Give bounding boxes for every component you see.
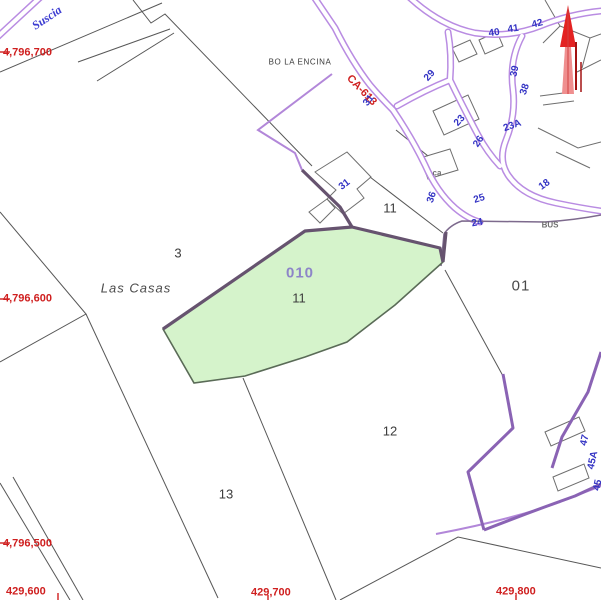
parcel-number: 01	[512, 278, 531, 295]
house-number: 45	[591, 478, 601, 492]
coordinate-label-y1: 4,796,700	[3, 47, 52, 59]
parcel-number: 12	[383, 424, 397, 439]
house-number: 31	[337, 177, 353, 193]
building-outline	[452, 40, 477, 62]
house-number: 47	[578, 433, 591, 447]
house-number: 18	[537, 177, 553, 193]
district-label: BO LA ENCINA	[269, 58, 332, 67]
coordinate-label-x2: 429,700	[251, 587, 291, 599]
coordinate-label-x1: 429,600	[6, 586, 46, 598]
house-number: 41	[507, 23, 520, 36]
cadastral-map[interactable]: 4,796,7004,796,6004,796,500429,600429,70…	[0, 0, 601, 600]
coordinate-label-y3: 4,796,500	[3, 538, 52, 550]
house-number: 45A	[586, 450, 601, 470]
house-number: 24	[471, 217, 484, 230]
house-number: 23A	[502, 118, 523, 135]
poi-label: ca	[433, 169, 442, 178]
parcel-number: 11	[292, 291, 306, 306]
road-ca613	[312, 0, 393, 110]
map-viewport[interactable]: 4,796,7004,796,6004,796,500429,600429,70…	[0, 0, 601, 600]
bus-line-boundary	[441, 215, 601, 266]
bus-stop-label: BUS	[542, 221, 560, 230]
parcel-number: 3	[174, 246, 181, 261]
coordinate-label-y2: 4,796,600	[3, 293, 52, 305]
parcel-number: 13	[219, 487, 233, 502]
place-label: Las Casas	[101, 281, 171, 296]
house-number: 38	[518, 82, 532, 96]
house-number: 40	[488, 27, 501, 40]
coordinate-label-x3: 429,800	[496, 586, 536, 598]
building-outline	[553, 464, 589, 491]
selected-parcel-ref: 010	[286, 265, 314, 282]
house-number: 29	[422, 68, 438, 84]
parcel-number: 11	[383, 201, 397, 216]
house-number: 39	[508, 64, 521, 78]
house-number: 25	[472, 192, 486, 206]
